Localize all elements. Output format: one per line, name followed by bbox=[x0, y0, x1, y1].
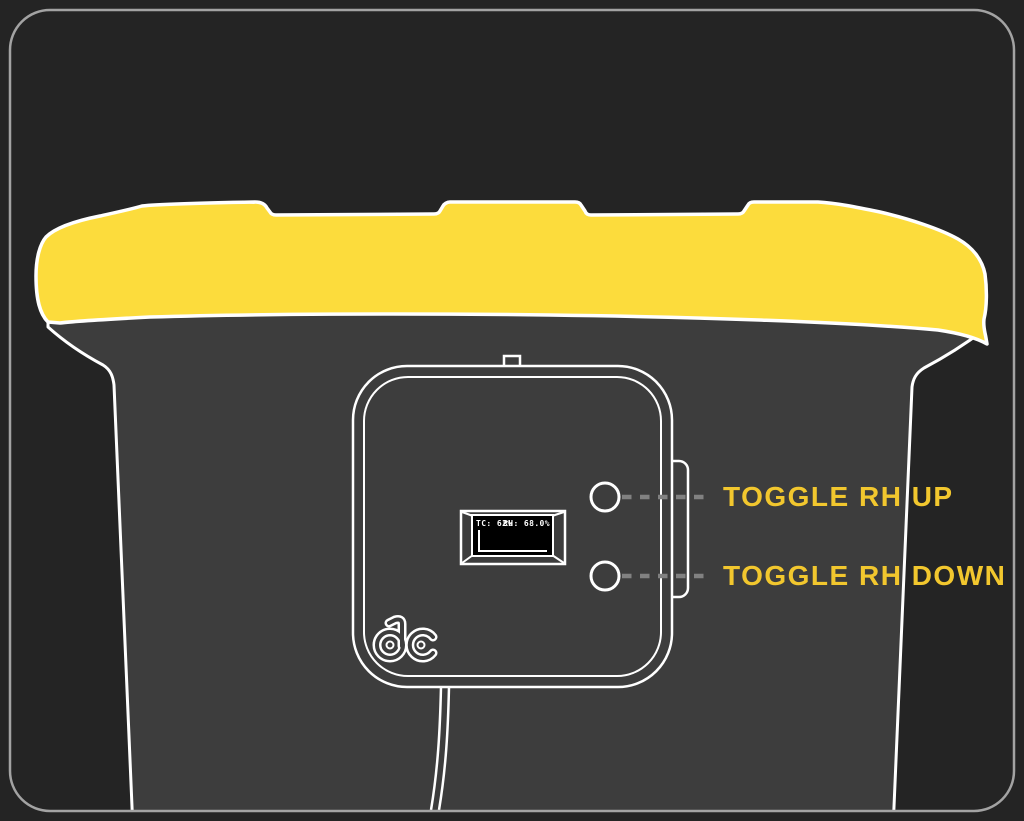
humidor-diagram: TC: 62% RH: 68.0% bbox=[0, 0, 1024, 821]
rh-down-button[interactable] bbox=[591, 562, 619, 590]
oled-display: TC: 62% RH: 68.0% bbox=[461, 511, 565, 564]
rh-up-button[interactable] bbox=[591, 483, 619, 511]
display-rh-readout: RH: 68.0% bbox=[503, 519, 550, 528]
label-toggle-rh-down: TOGGLE RH DOWN bbox=[723, 560, 1006, 591]
label-toggle-rh-up: TOGGLE RH UP bbox=[723, 481, 954, 512]
diagram-canvas: TC: 62% RH: 68.0% bbox=[0, 0, 1024, 821]
